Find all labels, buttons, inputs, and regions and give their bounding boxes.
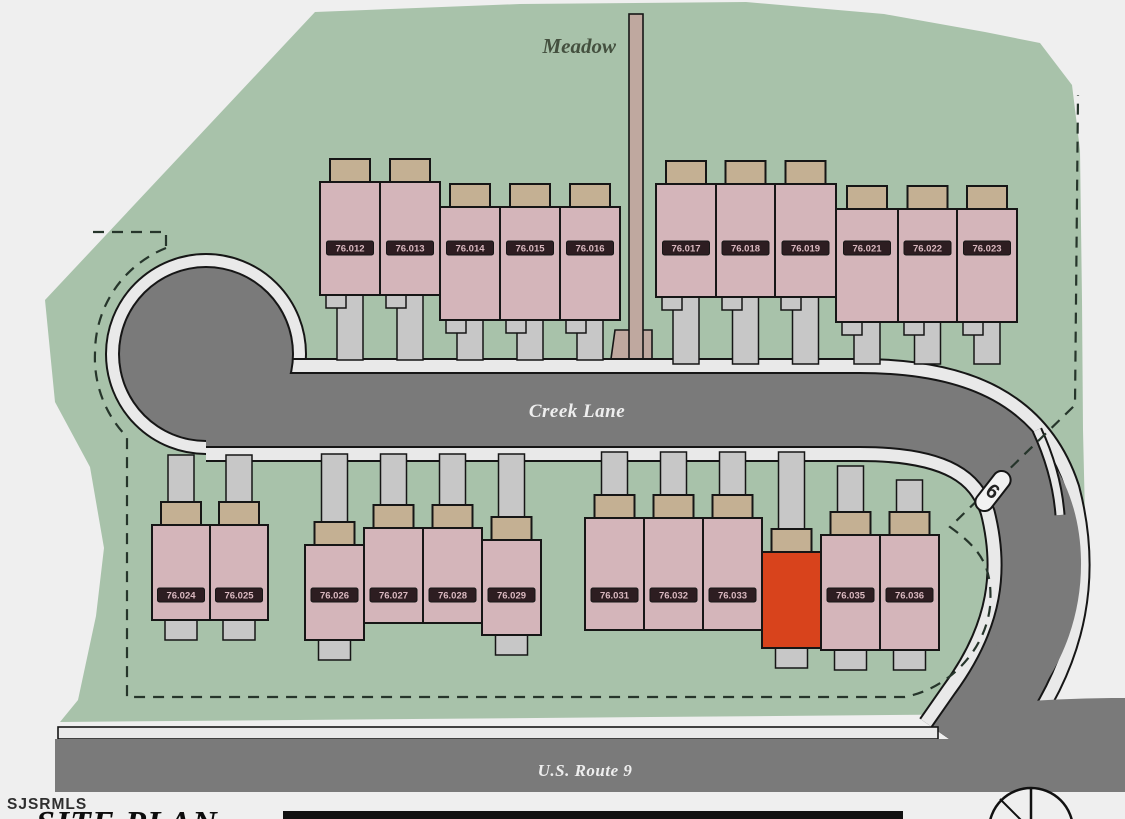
driveway (226, 455, 252, 506)
lot-number: 76.025 (224, 591, 254, 602)
driveway (322, 454, 348, 526)
lot-number: 76.019 (791, 244, 820, 255)
house-body (560, 207, 620, 320)
patio-stub (496, 633, 528, 655)
garage-pad (713, 495, 753, 518)
house-body (957, 209, 1017, 322)
garage-pad (450, 184, 490, 207)
lot-number: 76.014 (455, 244, 485, 255)
garage-pad (772, 529, 812, 552)
driveway (440, 454, 466, 509)
lot-number: 76.027 (379, 591, 408, 602)
lot-number: 76.036 (895, 591, 924, 602)
garage-pad (510, 184, 550, 207)
route9-label: U.S. Route 9 (538, 761, 633, 780)
lot-number: 76.022 (913, 244, 942, 255)
patio-stub (165, 618, 197, 640)
site-plan-image: 76.01276.01376.01476.01576.01676.01776.0… (0, 0, 1125, 819)
lot-number: 76.033 (718, 591, 747, 602)
driveway (168, 455, 194, 506)
garage-pad (374, 505, 414, 528)
legend-bar (283, 811, 903, 819)
driveway (720, 452, 746, 499)
house-body (836, 209, 898, 322)
garage-pad (570, 184, 610, 207)
garage-pad (654, 495, 694, 518)
page-title: SITE PLAN (36, 805, 218, 819)
house-body (585, 518, 644, 630)
garage-pad (433, 505, 473, 528)
route9-curb (58, 727, 938, 739)
meadow-label: Meadow (542, 34, 617, 58)
house-body (320, 182, 380, 295)
garage-pad (390, 159, 430, 182)
lot-number: 76.013 (395, 244, 424, 255)
garage-pad (219, 502, 259, 525)
patio-stub (319, 638, 351, 660)
driveway (499, 454, 525, 521)
house-body (380, 182, 440, 295)
house-body (152, 525, 210, 620)
garage-pad (666, 161, 706, 184)
garage-pad (315, 522, 355, 545)
garage-pad (831, 512, 871, 535)
driveway (897, 480, 923, 516)
house-body (423, 528, 482, 623)
garage-pad (786, 161, 826, 184)
lot-number: 76.021 (852, 244, 882, 255)
lot-number: 76.026 (320, 591, 349, 602)
house-body (500, 207, 560, 320)
garage-pad (890, 512, 930, 535)
house-body (762, 552, 821, 648)
driveway (381, 454, 407, 509)
creek-lane-label: Creek Lane (529, 401, 625, 422)
garage-pad (492, 517, 532, 540)
lot-number: 76.012 (335, 244, 364, 255)
garage-pad (967, 186, 1007, 209)
lot-number: 76.035 (836, 591, 866, 602)
house-body (644, 518, 703, 630)
garage-pad (595, 495, 635, 518)
house-body (703, 518, 762, 630)
patio-stub (835, 648, 867, 670)
lot-number: 76.017 (671, 244, 700, 255)
driveway (602, 452, 628, 499)
lot-number: 76.029 (497, 591, 526, 602)
lot-number: 76.032 (659, 591, 688, 602)
lot-number: 76.023 (972, 244, 1001, 255)
driveway (779, 452, 805, 533)
site-plan-canvas: 76.01276.01376.01476.01576.01676.01776.0… (0, 0, 1125, 819)
patio-stub (776, 646, 808, 668)
lot-number: 76.031 (600, 591, 630, 602)
lot-number: 76.016 (575, 244, 604, 255)
lot-number: 76.015 (515, 244, 545, 255)
driveway (661, 452, 687, 499)
driveway (838, 466, 864, 516)
house-body (898, 209, 957, 322)
garage-pad (847, 186, 887, 209)
patio-stub (223, 618, 255, 640)
house-body (364, 528, 423, 623)
garage-pad (161, 502, 201, 525)
lot-number: 76.028 (438, 591, 467, 602)
patio-stub (894, 648, 926, 670)
garage-pad (330, 159, 370, 182)
house-body (440, 207, 500, 320)
house-body (210, 525, 268, 620)
garage-pad (908, 186, 948, 209)
lot-number: 76.018 (731, 244, 760, 255)
garage-pad (726, 161, 766, 184)
lot-number: 76.024 (166, 591, 196, 602)
